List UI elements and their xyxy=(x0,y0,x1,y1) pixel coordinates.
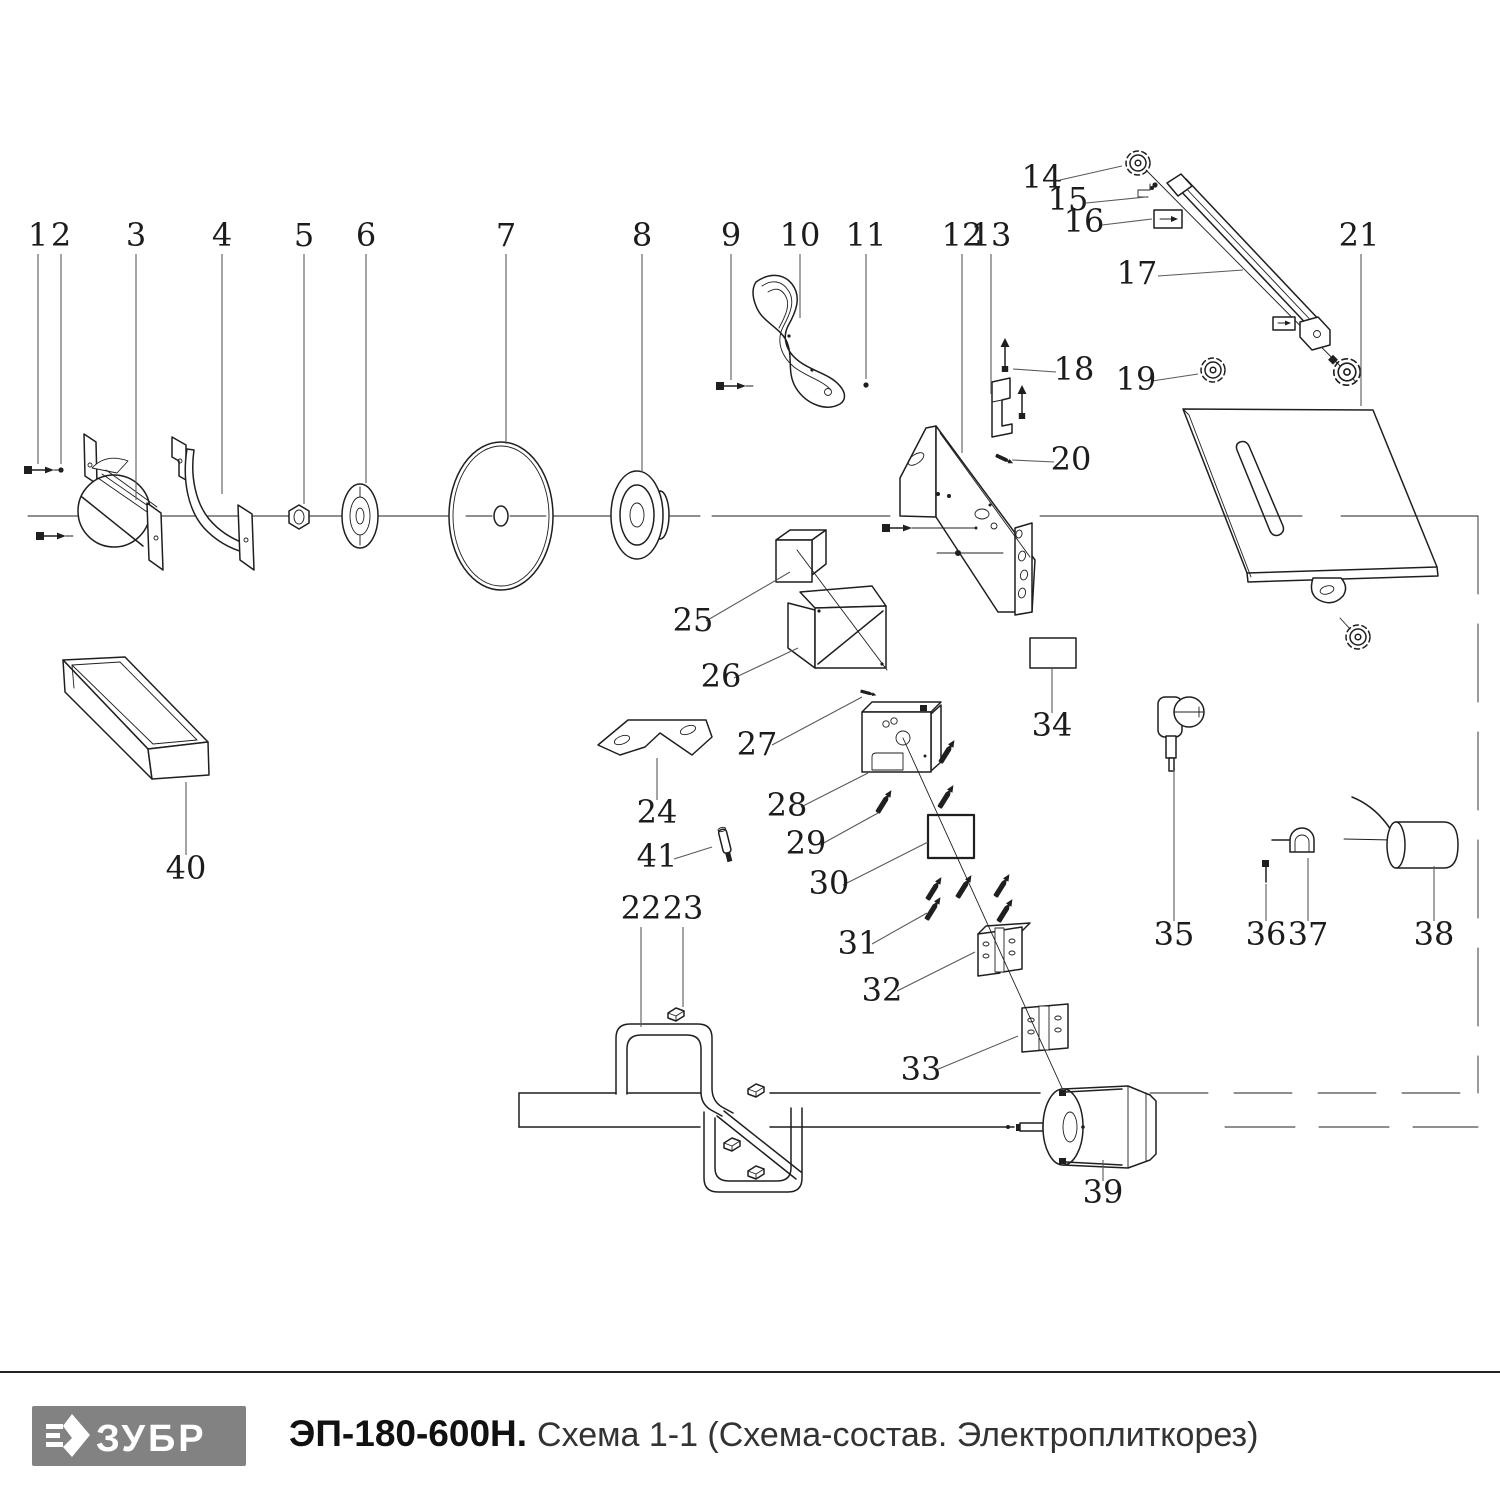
part-label-27: 27 xyxy=(737,725,778,763)
model-name: ЭП-180-600Н. xyxy=(289,1413,527,1455)
schematic-page: 1234567891011121314151617181920212223242… xyxy=(0,0,1500,1500)
part-screw-13b xyxy=(1018,385,1027,419)
part-label-34: 34 xyxy=(1032,706,1073,744)
labels-layer: 1234567891011121314151617181920212223242… xyxy=(28,158,1455,1211)
leader-line-31 xyxy=(872,913,927,944)
part-label-6: 6 xyxy=(356,216,376,254)
part-label-10: 10 xyxy=(780,216,821,254)
part-label-5: 5 xyxy=(294,216,314,254)
part-knob-rail-end xyxy=(1334,359,1360,385)
part-bolt-9 xyxy=(716,382,753,390)
part-label-18: 18 xyxy=(1054,350,1095,388)
part-label-16: 16 xyxy=(1064,202,1105,240)
part-cutting-disc-7 xyxy=(449,442,553,590)
part-guard-outer-4 xyxy=(172,437,254,570)
part-label-31: 31 xyxy=(838,924,879,962)
part-guard-arm-10 xyxy=(753,275,845,407)
part-label-13: 13 xyxy=(971,216,1012,254)
part-chute-26 xyxy=(788,586,886,668)
part-screw-29 xyxy=(875,788,894,814)
part-label-24: 24 xyxy=(637,793,678,831)
part-label-29: 29 xyxy=(786,824,827,862)
part-nut-5 xyxy=(289,505,309,529)
part-label-32: 32 xyxy=(862,971,903,1009)
part-plug-35 xyxy=(1158,697,1204,771)
part-bracket-13 xyxy=(992,378,1012,437)
part-label-7: 7 xyxy=(496,216,516,254)
part-label-40: 40 xyxy=(166,849,207,887)
part-label-17: 17 xyxy=(1117,254,1158,292)
part-label-41: 41 xyxy=(637,837,678,875)
leader-line-29 xyxy=(820,813,878,845)
part-label-11: 11 xyxy=(846,216,887,254)
leader-line-33 xyxy=(936,1036,1018,1070)
part-knob-table xyxy=(1340,618,1370,649)
part-label-20: 20 xyxy=(1051,440,1092,478)
leader-line-27 xyxy=(772,697,862,745)
part-screw-27 xyxy=(860,689,877,697)
leader-line-18 xyxy=(1013,369,1056,372)
part-brush-holder-32 xyxy=(978,923,1030,976)
part-screw-15 xyxy=(1138,184,1154,197)
part-label-25: 25 xyxy=(673,601,714,639)
part-guard-inner-3 xyxy=(78,434,163,570)
part-label-38: 38 xyxy=(1414,915,1455,953)
part-label-2: 2 xyxy=(51,216,71,254)
brand-name: ЗУБР xyxy=(96,1418,207,1460)
part-flange-inner-8 xyxy=(611,471,669,559)
leader-line-28 xyxy=(801,773,868,807)
part-mount-plate-24 xyxy=(598,720,712,755)
part-label-36: 36 xyxy=(1246,915,1287,953)
part-cable-clamp-37 xyxy=(1272,828,1314,852)
part-water-tray-40 xyxy=(63,657,209,779)
part-frame-bracket-12 xyxy=(882,426,1035,615)
part-label-28: 28 xyxy=(767,786,808,824)
part-table-top-21 xyxy=(1183,409,1438,603)
leader-line-17 xyxy=(1158,270,1243,276)
rail-axis-line xyxy=(1146,170,1355,381)
part-motor-39 xyxy=(1006,1086,1156,1168)
leader-line-16 xyxy=(1102,219,1152,225)
part-stand-tube-22 xyxy=(616,1024,802,1192)
part-label-9: 9 xyxy=(721,216,741,254)
leader-line-41 xyxy=(674,847,712,859)
boundary-dashed-line xyxy=(1150,516,1478,1093)
part-label-8: 8 xyxy=(632,216,652,254)
part-label-4: 4 xyxy=(212,216,232,254)
part-switch-28 xyxy=(862,702,941,772)
part-bolt-1 xyxy=(24,466,64,474)
part-screw-36 xyxy=(1262,860,1269,882)
part-pin-11 xyxy=(863,382,868,387)
base-strip xyxy=(519,1093,1478,1127)
part-knob-19 xyxy=(1201,358,1225,382)
part-plate-34 xyxy=(1030,638,1076,668)
part-brush-holder-33 xyxy=(1022,1004,1068,1052)
schema-title: ЭП-180-600Н. Схема 1-1 (Схема-состав. Эл… xyxy=(289,1413,1258,1455)
part-bolt-2 xyxy=(36,532,73,540)
part-screw-20 xyxy=(995,453,1014,465)
leader-line-19 xyxy=(1152,374,1198,381)
part-label-33: 33 xyxy=(901,1050,942,1088)
brand-logo-box: ЗУБР xyxy=(32,1406,246,1466)
zubr-arrow-icon xyxy=(63,1414,90,1457)
part-screw-18 xyxy=(1001,338,1010,372)
part-label-37: 37 xyxy=(1288,915,1329,953)
part-label-3: 3 xyxy=(126,216,146,254)
part-label-1: 1 xyxy=(28,216,48,254)
part-flange-outer-6 xyxy=(342,484,378,548)
leader-line-30 xyxy=(843,842,928,885)
part-label-35: 35 xyxy=(1154,915,1195,953)
leader-line-20 xyxy=(1012,460,1054,462)
zubr-logo: ЗУБР xyxy=(32,1406,246,1466)
leader-line-25 xyxy=(706,572,790,621)
part-label-21: 21 xyxy=(1339,216,1380,254)
part-knob-14 xyxy=(1126,151,1158,188)
part-label-26: 26 xyxy=(701,657,742,695)
footer-divider xyxy=(0,1371,1500,1373)
leader-line-14 xyxy=(1060,166,1122,180)
part-capacitor-38 xyxy=(1344,797,1458,868)
leader-line-26 xyxy=(734,648,798,678)
part-pin-41 xyxy=(718,827,734,863)
part-label-39: 39 xyxy=(1083,1173,1124,1211)
part-label-22: 22 xyxy=(621,889,662,927)
part-label-19: 19 xyxy=(1116,360,1157,398)
part-guide-rail-17 xyxy=(1167,174,1338,365)
part-label-30: 30 xyxy=(809,864,850,902)
exploded-parts-diagram: 1234567891011121314151617181920212223242… xyxy=(0,0,1500,1385)
part-label-23: 23 xyxy=(663,889,704,927)
part-clamp-16 xyxy=(1154,210,1182,228)
part-plate-30 xyxy=(928,815,974,858)
leader-line-32 xyxy=(897,952,975,991)
schema-subtitle: Схема 1-1 (Схема-состав. Электроплиткоре… xyxy=(537,1416,1258,1455)
